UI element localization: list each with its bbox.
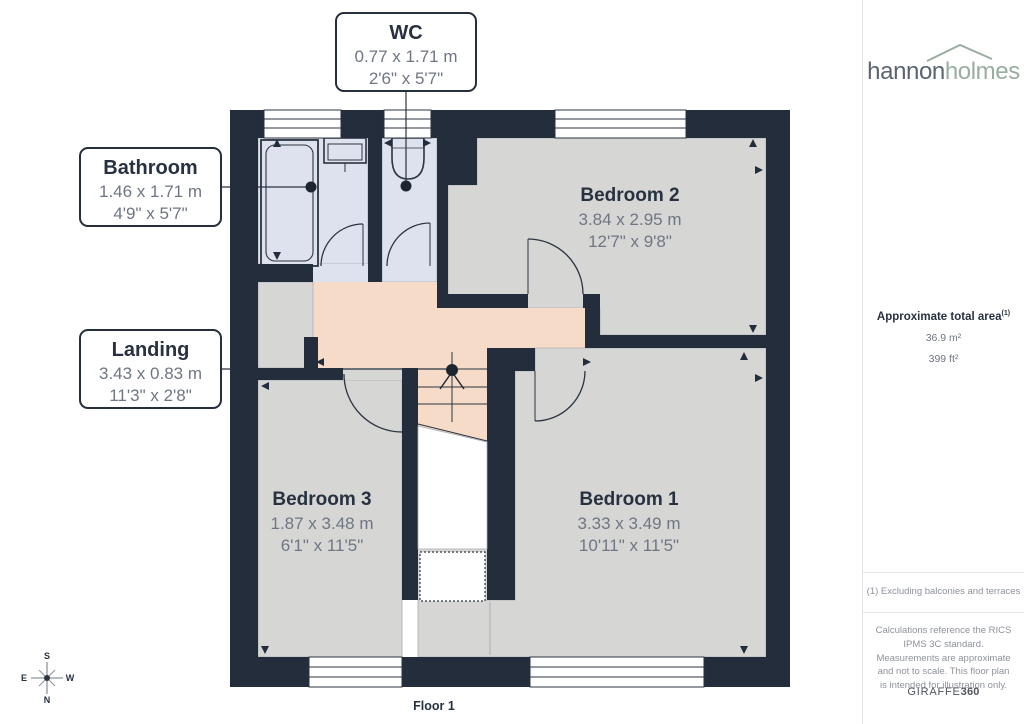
compass-icon [31, 662, 63, 694]
sidebar: hannonholmes Approximate total area(1) 3… [862, 0, 1024, 724]
bathroom-callout-title: Bathroom [81, 156, 220, 181]
brand-part1: GIRAFFE [907, 686, 960, 698]
bedroom-1-label: Bedroom 1 3.33 x 3.49 m 10'11" x 11'5" [577, 488, 680, 557]
compass-e: E [21, 673, 27, 683]
landing-callout-title: Landing [81, 338, 220, 363]
landing-callout-metric: 3.43 x 0.83 m [81, 363, 220, 385]
logo-part1: hannon [867, 58, 945, 85]
compass-n: N [44, 695, 51, 705]
area-footnote: (1) Excluding balconies and terraces [863, 586, 1024, 597]
bathroom-callout: Bathroom 1.46 x 1.71 m 4'9" x 5'7" [79, 147, 222, 227]
bedroom-2-metric: 3.84 x 2.95 m [578, 209, 681, 231]
total-area-label: Approximate total area [877, 311, 1002, 323]
total-area-imperial: 399 ft² [863, 353, 1024, 365]
logo-part2: holmes [945, 58, 1020, 85]
total-area: Approximate total area(1) 36.9 m² 399 ft… [863, 310, 1024, 365]
disclaimer: Calculations reference the RICS IPMS 3C … [863, 624, 1024, 693]
agency-logo: hannonholmes [863, 40, 1024, 86]
landing-callout: Landing 3.43 x 0.83 m 11'3" x 2'8" [79, 329, 222, 409]
sidebar-divider-2 [863, 612, 1024, 613]
bathroom-callout-metric: 1.46 x 1.71 m [81, 181, 220, 203]
giraffe360-brand: GIRAFFE360 [863, 686, 1024, 698]
bedroom-2-title: Bedroom 2 [578, 184, 681, 209]
bedroom-1-title: Bedroom 1 [577, 488, 680, 513]
brand-part2: 360 [961, 686, 980, 698]
compass-s: S [44, 651, 50, 661]
floorplan-sheet: WC 0.77 x 1.71 m 2'6" x 5'7" Bathroom 1.… [0, 0, 1024, 724]
bedroom-3-imperial: 6'1" x 11'5" [270, 535, 373, 557]
total-area-footnote-marker: (1) [1002, 310, 1011, 317]
bedroom-3-label: Bedroom 3 1.87 x 3.48 m 6'1" x 11'5" [270, 488, 373, 557]
hatch-opening [420, 552, 485, 601]
wc-callout: WC 0.77 x 1.71 m 2'6" x 5'7" [335, 12, 477, 92]
bedroom-1-imperial: 10'11" x 11'5" [577, 535, 680, 557]
total-area-metric: 36.9 m² [863, 332, 1024, 344]
wc-callout-title: WC [337, 21, 475, 46]
bathroom-callout-imperial: 4'9" x 5'7" [81, 203, 220, 225]
bedroom-3-title: Bedroom 3 [270, 488, 373, 513]
wc-callout-metric: 0.77 x 1.71 m [337, 46, 475, 68]
wc-callout-imperial: 2'6" x 5'7" [337, 68, 475, 90]
landing-callout-imperial: 11'3" x 2'8" [81, 385, 220, 407]
bedroom-2-imperial: 12'7" x 9'8" [578, 231, 681, 253]
toilet-icon [392, 138, 424, 179]
bath-icon [261, 140, 318, 266]
sidebar-divider-1 [863, 572, 1024, 573]
bedroom-2-label: Bedroom 2 3.84 x 2.95 m 12'7" x 9'8" [578, 184, 681, 253]
floor-label: Floor 1 [413, 699, 455, 713]
bedroom-3-metric: 1.87 x 3.48 m [270, 513, 373, 535]
compass-w: W [66, 673, 75, 683]
bedroom-1-metric: 3.33 x 3.49 m [577, 513, 680, 535]
